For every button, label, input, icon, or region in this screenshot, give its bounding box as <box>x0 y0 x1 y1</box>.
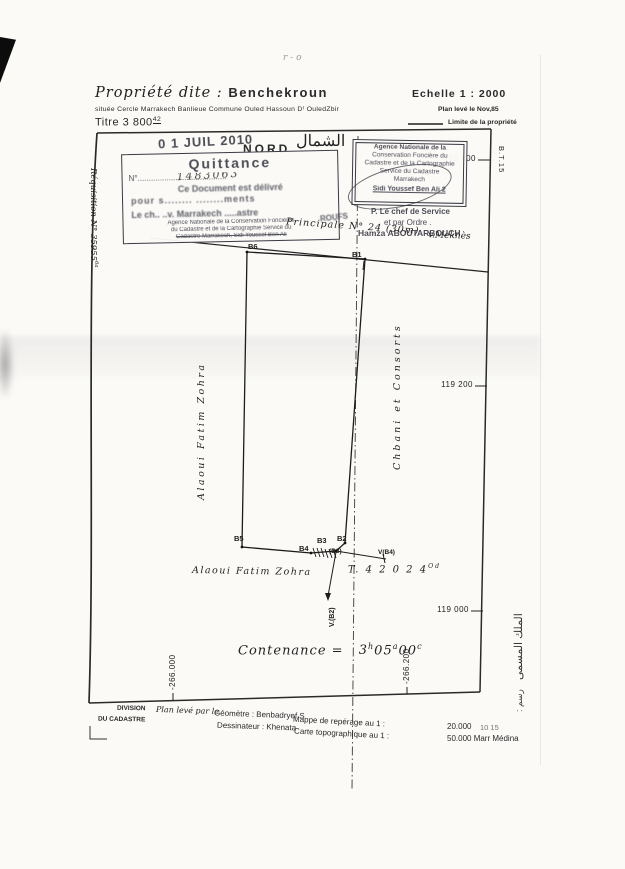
titre-number: Titre 3 80042 <box>95 116 161 129</box>
point-vb4: V(B4) <box>378 549 395 556</box>
point-b4: B4 <box>299 544 309 553</box>
frame-bottom <box>89 692 480 703</box>
point-b3: B3 <box>317 536 327 545</box>
coord-right-119000: 119 000 <box>433 605 469 614</box>
property-label: Propriété dite : Benchekroun <box>95 85 328 101</box>
title-ref-sup: Od <box>428 563 441 570</box>
point-b5: B5 <box>234 534 244 543</box>
quittance-no-label: N° <box>128 174 137 183</box>
carte-value: 50.000 Marr Médina <box>447 734 519 743</box>
vb2-arrow-line <box>328 552 336 596</box>
frame-top <box>97 129 491 133</box>
road-line <box>150 238 488 272</box>
mappe-pencil-note: 10 15 <box>480 723 499 732</box>
pencil-annotation: r - o <box>283 53 301 63</box>
point-b1: B1 <box>352 250 362 259</box>
titre-text: Titre 3 800 <box>95 117 153 129</box>
division-line-2: DU CADASTRE <box>98 716 145 724</box>
plan-date: Plan levé le Nov,85 <box>438 106 499 113</box>
service-stamp: Agence Nationale de la Conservation Fonc… <box>351 139 467 207</box>
requisition-sup: 6a <box>93 261 99 268</box>
frame-right <box>480 129 491 692</box>
title-ref-text: T. 4 2 0 2 4 <box>348 564 428 575</box>
division-line-1: DIVISION <box>117 705 146 712</box>
contenance-centiares: 00 <box>399 643 418 658</box>
property-name: Benchekroun <box>228 85 328 100</box>
contenance-hectares: 3 <box>359 643 368 658</box>
coord-right-119200: 119 200 <box>437 380 473 389</box>
corner-mark <box>90 726 107 739</box>
arabic-margin-note: : رسم <box>514 684 525 712</box>
point-b6: B6 <box>248 242 258 251</box>
scale-label: Echelle 1 : 2000 <box>412 88 506 100</box>
owner-right-label: Chbani et Consorts <box>392 270 405 470</box>
titre-sup: 42 <box>153 116 162 124</box>
scanned-cadastral-plan: Propriété dite : Benchekroun Echelle 1 :… <box>0 0 625 869</box>
legend-limit-label: Limite de la propriété <box>448 119 517 126</box>
coord-bottom-266000: -266.000 <box>168 650 177 690</box>
north-arabic-label: الشمال <box>296 131 345 151</box>
signature-line-1: P. Le chef de Service <box>371 207 450 216</box>
requisition-label: Réquisition N° 359556a <box>88 168 99 308</box>
contenance-ares: 05 <box>374 643 393 658</box>
title-ref-label: T. 4 2 0 2 4Od <box>348 563 441 575</box>
contenance-label: Contenance = 3h05a00c <box>238 642 423 658</box>
arabic-property-note: الملك المسمى <box>512 585 526 680</box>
road-destination: v.Meknès <box>428 230 471 241</box>
quittance-stamp: Quittance N°............................… <box>121 150 340 245</box>
contenance-text: Contenance = <box>238 643 344 658</box>
quittance-line-pour: pour s........ ........ments <box>131 193 256 206</box>
owner-bottom-label: Alaoui Fatim Zohra <box>192 565 312 578</box>
mappe-value: 20.000 <box>447 722 471 731</box>
point-b3-paren: (B3) <box>329 548 342 555</box>
property-dite-text: Propriété dite : <box>95 85 223 101</box>
location-line: située Cercle Marrakech Banlieue Commune… <box>95 106 339 113</box>
point-b2: B2 <box>337 534 347 543</box>
parcel-boundary <box>242 252 365 553</box>
bt-reference: B.T.15 <box>497 146 506 180</box>
contenance-c-unit: c <box>417 642 423 651</box>
owner-left-label: Alaoui Fatim Zohra <box>196 340 209 500</box>
point-vb2: V.(B2) <box>329 591 338 627</box>
requisition-text: Réquisition N° 35955 <box>88 168 98 261</box>
